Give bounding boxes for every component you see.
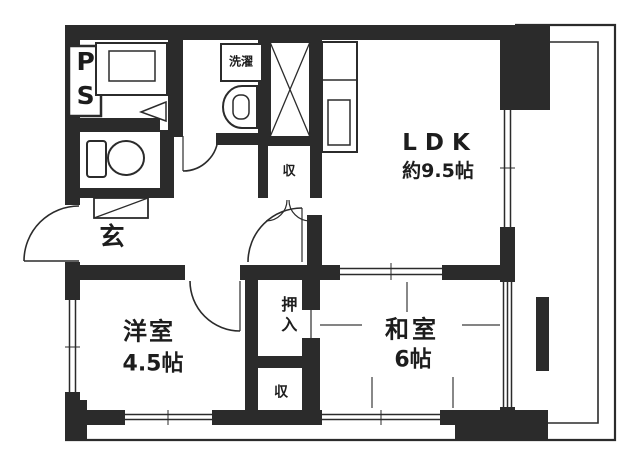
ldk-room-label: LDK (402, 131, 478, 155)
ldk-kitchen-unit-icon (322, 42, 357, 152)
western-room-label: 洋室 (123, 319, 175, 344)
hall-storage-label: 収 (282, 165, 295, 179)
washbasin-icon (223, 86, 257, 128)
ldk-size-label: 約9.5帖 (402, 162, 474, 182)
western-room-door-arc (190, 281, 240, 331)
pipe-space-label: PS (72, 47, 98, 115)
oshiire-closet-label: 押入 (279, 296, 296, 336)
washroom-door-arc (183, 136, 218, 171)
japanese-room-label: 和室 (385, 317, 439, 342)
toilet-icon (87, 141, 144, 177)
laundry-label: 洗濯 (229, 56, 253, 69)
shoe-cabinet-icon (94, 198, 148, 218)
balcony-partition (536, 297, 549, 371)
western-room-size-label: 4.5帖 (123, 352, 184, 375)
entrance-label: 玄 (99, 224, 124, 250)
bottom-storage-label: 収 (274, 386, 288, 401)
floorplan-canvas: PS 洗濯 LDK 約9.5帖 収 玄 洋室 4.5帖 押入 収 和室 6帖 (0, 0, 640, 457)
kitchen-counter-icon (96, 43, 167, 95)
shaft-x-icon (270, 42, 310, 137)
japanese-room-size-label: 6帖 (394, 348, 431, 371)
tatami-lines (320, 282, 500, 408)
